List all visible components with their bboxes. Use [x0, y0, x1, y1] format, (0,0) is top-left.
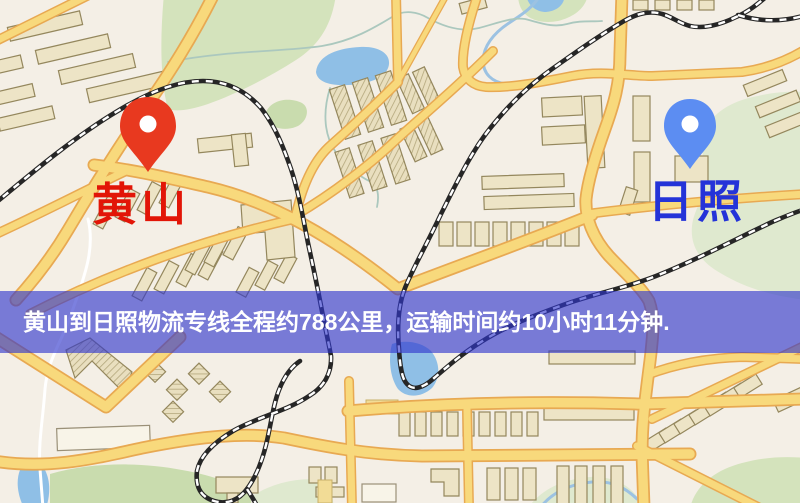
route-info-banner: 黄山到日照物流专线全程约788公里，运输时间约10小时11分钟.: [0, 291, 800, 353]
origin-label: 黄山: [92, 179, 190, 230]
destination-label: 日照: [648, 176, 746, 227]
route-summary-text: 黄山到日照物流专线全程约788公里，运输时间约10小时11分钟.: [23, 309, 670, 335]
map-canvas[interactable]: 黄山 日照: [0, 0, 800, 503]
map-screenshot: 黄山 日照 黄山到日照物流专线全程约788公里，运输时间约10小时11分钟.: [0, 0, 800, 503]
